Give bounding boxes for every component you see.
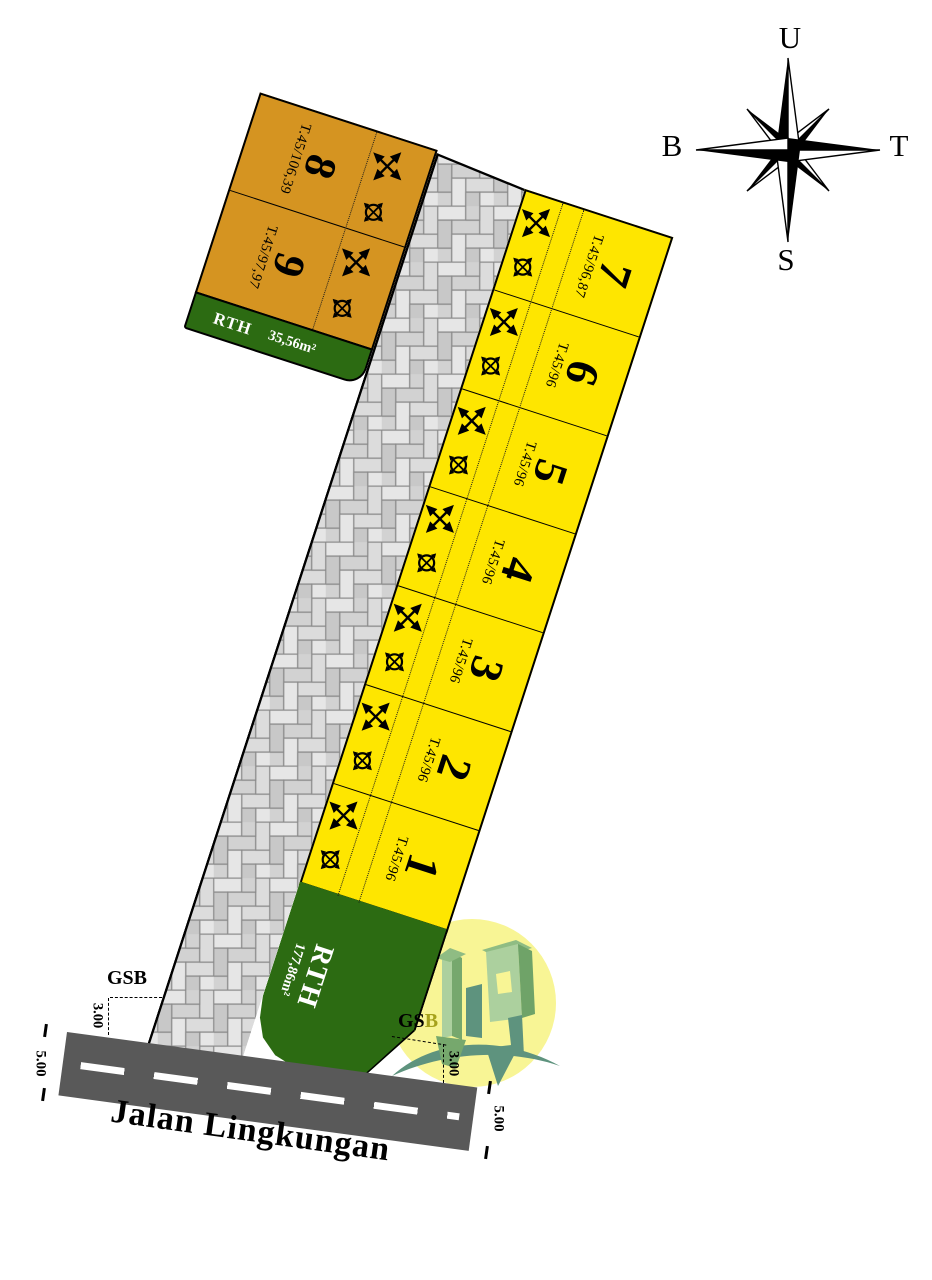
circle-cross-icon — [317, 846, 343, 872]
gsb-dashed-line — [108, 998, 109, 1035]
siteplan-canvas: 8 T.45/106,39 9 T.45/97,97 RTH 35,56m² — [0, 0, 932, 1280]
circle-cross-icon — [360, 199, 386, 225]
plot-number: 2 — [433, 751, 477, 785]
road-width-dimension: 5.00 — [32, 1042, 49, 1086]
plot-number: 1 — [401, 850, 445, 884]
circle-cross-icon — [349, 748, 375, 774]
gsb-text: GS — [398, 1010, 425, 1032]
crossed-arrows-icon — [521, 208, 551, 238]
compass-north-label: U — [770, 20, 810, 56]
crossed-arrows-icon — [361, 702, 391, 732]
circle-cross-icon — [414, 550, 440, 576]
gsb-dashed-line — [110, 997, 162, 998]
setback-dimension: 3.00 — [89, 996, 106, 1036]
road-width-dimension: 5.00 — [490, 1097, 507, 1141]
crossed-arrows-icon — [329, 800, 359, 830]
crossed-arrows-icon — [457, 406, 487, 436]
crossed-arrows-icon — [393, 603, 423, 633]
plot-number: 4 — [497, 554, 541, 588]
dimension-tick — [484, 1146, 489, 1159]
plot-number: 9 — [267, 249, 309, 281]
gsb-text-olive: B — [425, 1010, 438, 1032]
compass-south-label: S — [766, 242, 806, 278]
plot-number: 3 — [465, 652, 509, 686]
rth-area-value: 35,56m² — [266, 327, 318, 358]
circle-cross-icon — [329, 295, 355, 321]
circle-cross-icon — [446, 452, 472, 478]
dimension-tick — [41, 1088, 46, 1101]
plot-number: 7 — [593, 258, 637, 292]
crossed-arrows-icon — [372, 151, 402, 181]
circle-cross-icon — [510, 254, 536, 280]
circle-cross-icon — [381, 649, 407, 675]
compass-rose-icon — [668, 30, 908, 270]
plot-number: 8 — [299, 150, 341, 182]
compass-east-label: T — [879, 128, 919, 164]
crossed-arrows-icon — [425, 504, 455, 534]
setback-dimension: 3.00 — [445, 1044, 462, 1084]
plot-number: 5 — [529, 455, 573, 489]
rth-label: RTH — [211, 308, 255, 339]
gsb-label-right: GSB — [398, 1010, 438, 1033]
plot-number: 6 — [561, 356, 605, 390]
circle-cross-icon — [478, 353, 504, 379]
crossed-arrows-icon — [341, 247, 371, 277]
gsb-label-left: GSB — [107, 967, 147, 990]
compass-west-label: B — [652, 128, 692, 164]
dimension-tick — [43, 1024, 48, 1037]
crossed-arrows-icon — [489, 307, 519, 337]
